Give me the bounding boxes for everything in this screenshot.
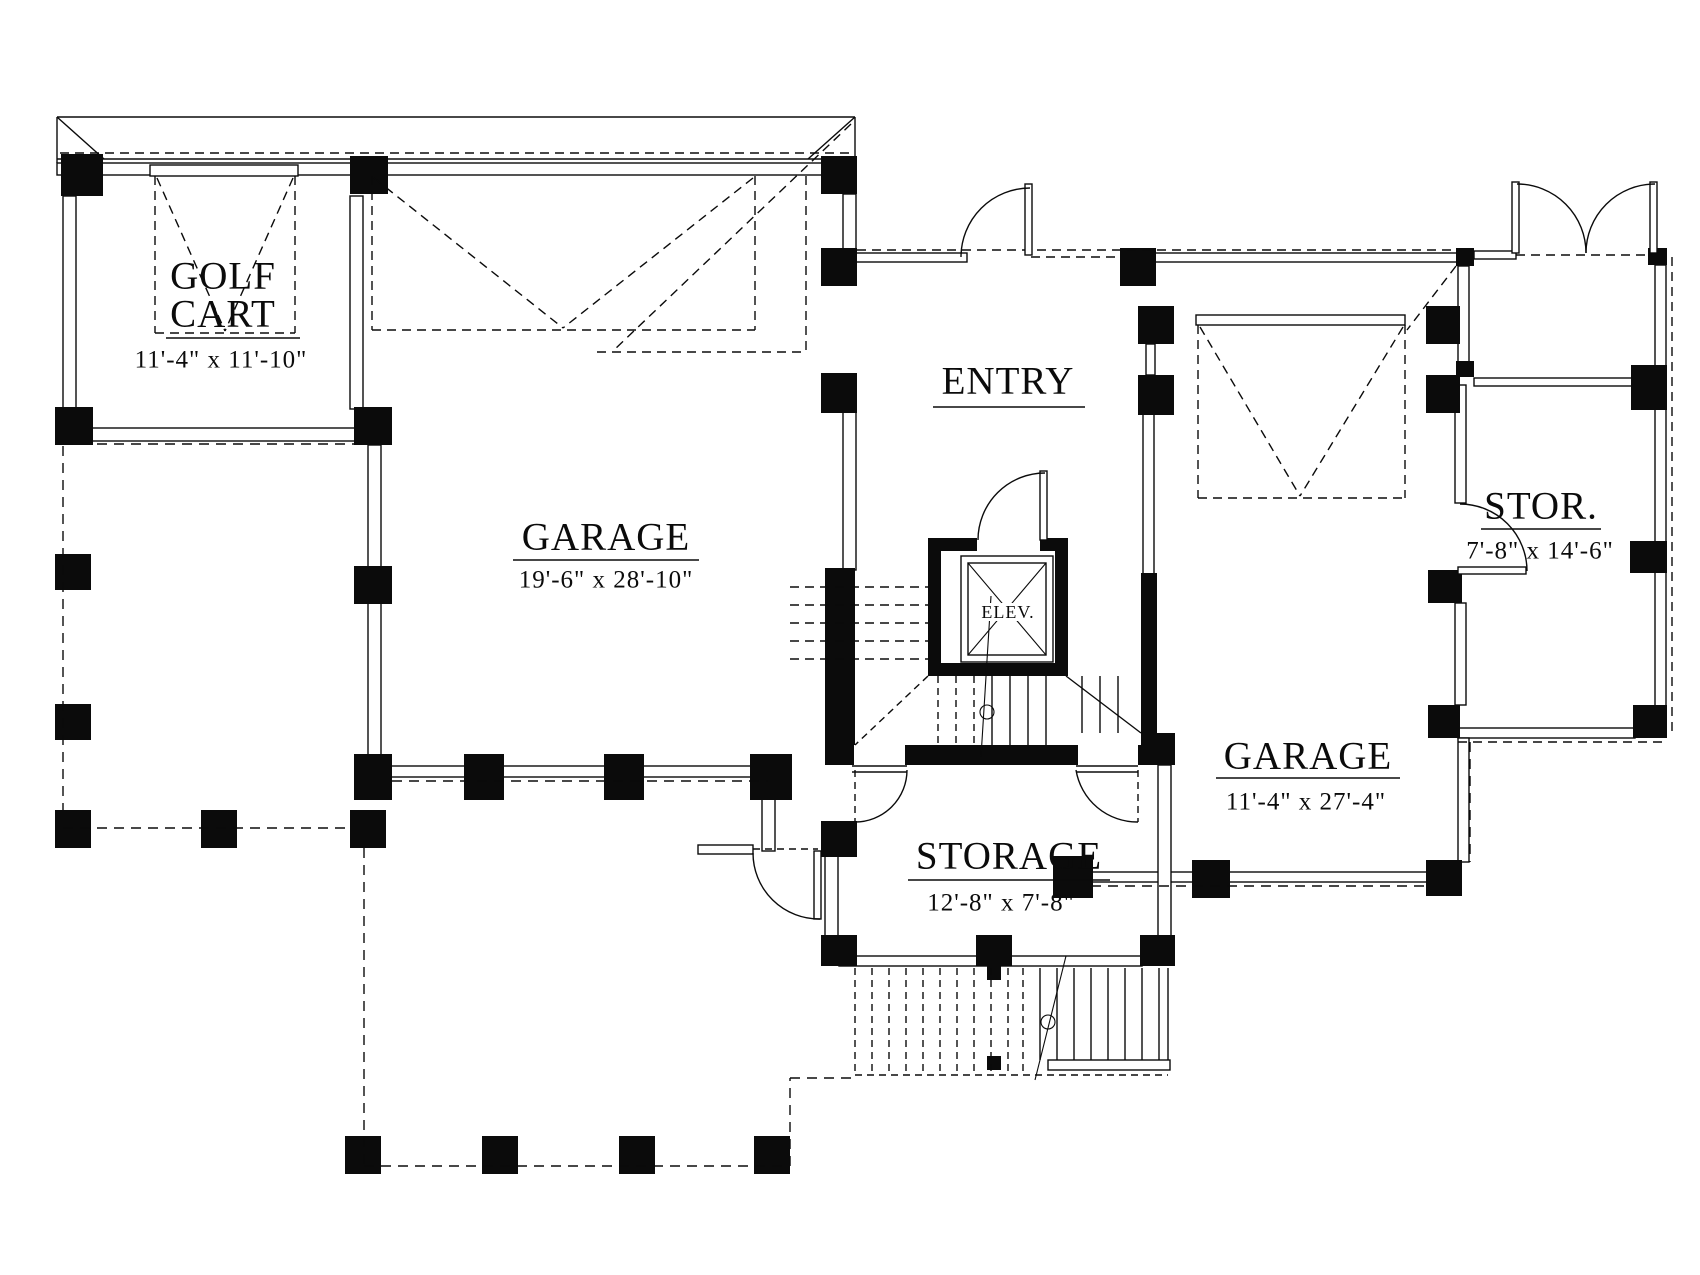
room-label-golf-cart-line2: CART [170,295,276,334]
floor-plan-linework [0,0,1700,1275]
room-label-storage-bottom: STORAGE [916,837,1102,876]
bottom-exterior-stairs [855,956,1170,1080]
room-label-golf-cart-line1: GOLF [170,257,276,296]
storage-bottom-doors [852,766,1138,822]
room-dim-storage-bottom: 12'-8" x 7'-8" [927,891,1075,916]
room-dim-garage-right: 11'-4" x 27'-4" [1226,790,1386,815]
room-dim-garage-left: 19'-6" x 28'-10" [519,568,694,593]
room-label-elevator: ELEV. [979,603,1036,621]
garage-right-overhead-door [1198,325,1405,498]
roof-canopy [57,117,855,163]
elevator-shaft [928,471,1068,676]
floor-plan: GOLF CART 11'-4" x 11'-10" GARAGE 19'-6"… [0,0,1700,1275]
storage-exterior-door [753,849,821,919]
french-doors [1512,182,1657,255]
entry-door [961,184,1120,257]
room-dim-storage-right: 7'-8" x 14'-6" [1466,539,1614,564]
room-label-entry: ENTRY [942,362,1075,401]
garage-left-overhead-door [372,176,755,330]
exterior-walls [57,163,1666,966]
room-label-garage-right: GARAGE [1224,737,1393,776]
room-label-garage-left: GARAGE [522,518,691,557]
room-label-storage-right: STOR. [1484,487,1598,526]
room-dim-golf-cart: 11'-4" x 11'-10" [135,348,308,373]
